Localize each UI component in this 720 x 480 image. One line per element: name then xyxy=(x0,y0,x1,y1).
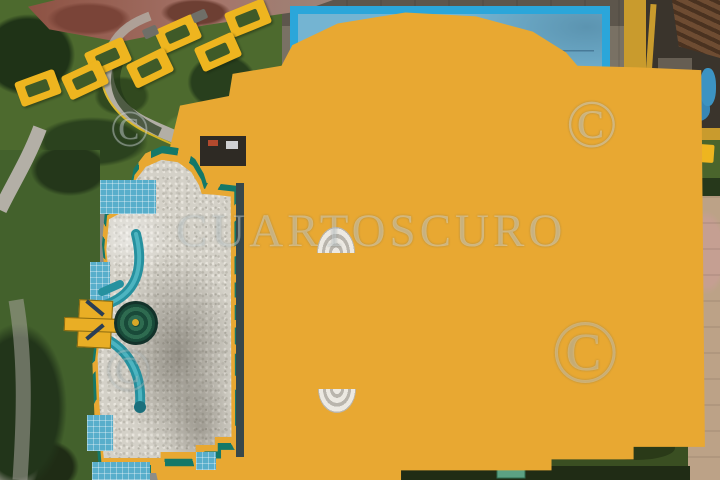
white-item xyxy=(226,141,238,149)
blue-tile-patch xyxy=(92,462,150,480)
aerial-pool-photo: CUARTOSCURO © © © © xyxy=(0,0,720,480)
red-item xyxy=(208,140,218,146)
dark-platform xyxy=(200,136,246,166)
spiral-slide-hub xyxy=(132,319,139,326)
blue-equipment xyxy=(700,68,716,106)
corrugated-roof xyxy=(672,0,720,58)
slide-piece xyxy=(102,284,120,292)
slide-exit xyxy=(134,401,146,413)
shadow-gap xyxy=(236,183,244,457)
blue-tile-patch xyxy=(196,452,216,470)
